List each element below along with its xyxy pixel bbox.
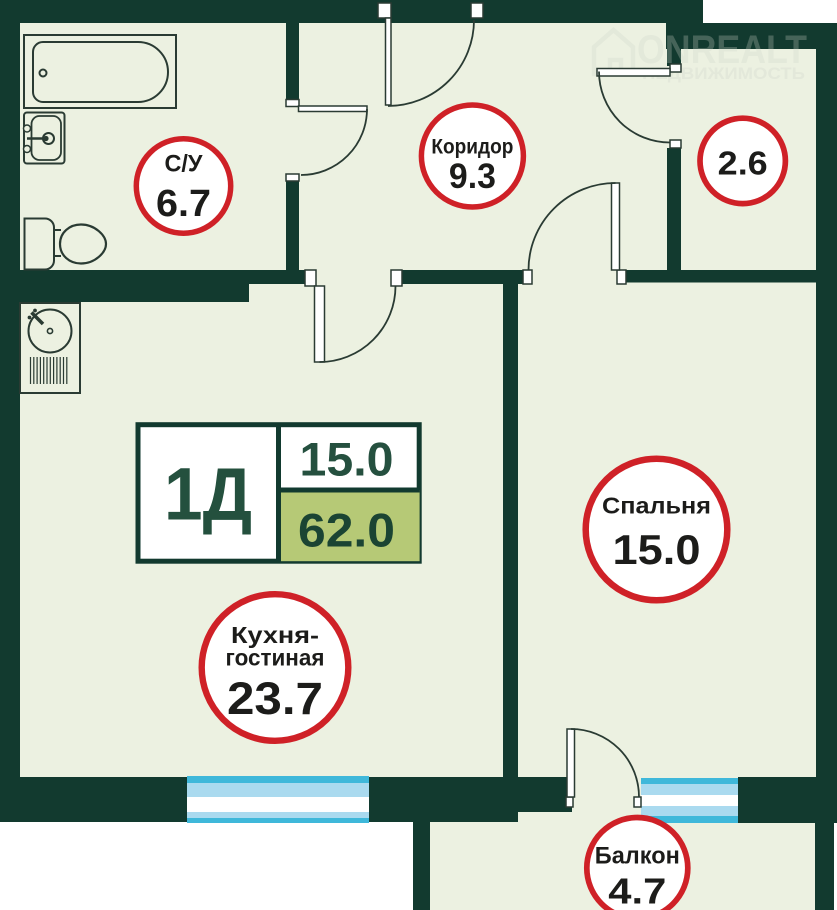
svg-text:2.6: 2.6 [718,145,768,182]
svg-text:Балкон: Балкон [595,843,680,869]
svg-text:23.7: 23.7 [227,673,323,724]
svg-text:15.0: 15.0 [300,433,394,486]
svg-text:Спальня: Спальня [602,493,711,519]
svg-text:62.0: 62.0 [298,504,395,557]
svg-text:1Д: 1Д [164,453,252,536]
svg-text:4.7: 4.7 [608,871,666,910]
svg-text:6.7: 6.7 [156,183,211,225]
svg-text:Коридор: Коридор [431,136,513,159]
svg-text:С/У: С/У [165,151,204,178]
svg-text:15.0: 15.0 [613,526,701,573]
svg-text:9.3: 9.3 [449,157,496,196]
svg-text:гостиная: гостиная [226,645,325,671]
